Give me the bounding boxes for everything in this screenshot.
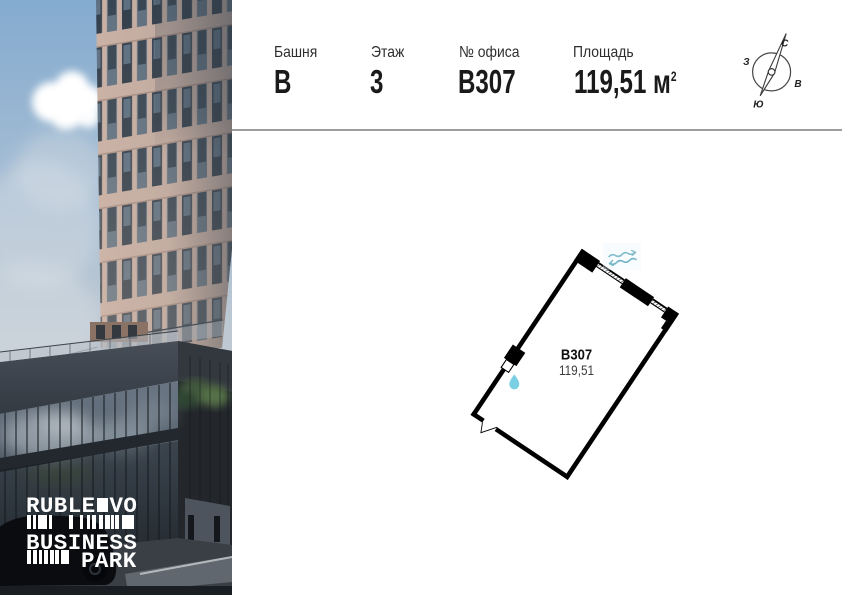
svg-text:B307: B307 [561,346,592,363]
svg-text:119,51: 119,51 [559,362,594,378]
